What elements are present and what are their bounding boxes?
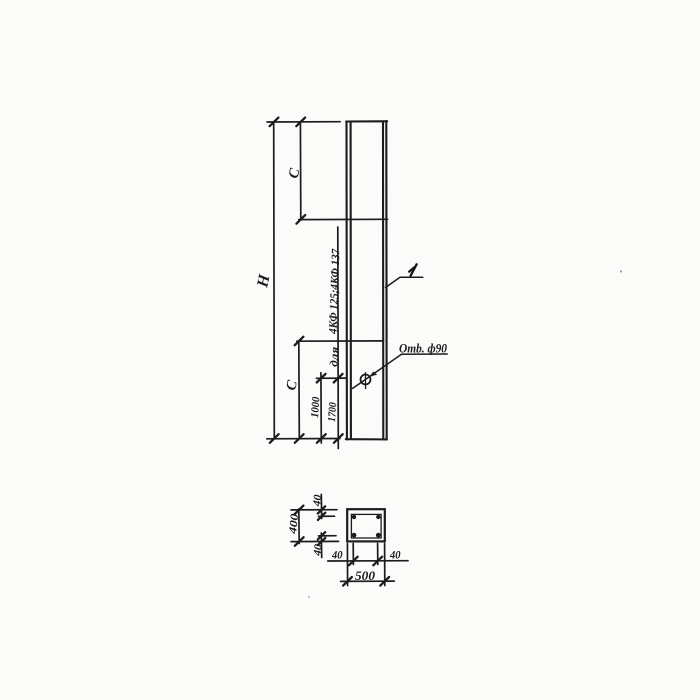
svg-text:1000: 1000 — [309, 396, 322, 418]
svg-text:500: 500 — [355, 568, 376, 583]
svg-text:40: 40 — [331, 550, 343, 562]
svg-text:Omb. ф90: Omb. ф90 — [399, 342, 448, 356]
svg-text:40: 40 — [311, 494, 324, 508]
svg-text:40: 40 — [389, 550, 401, 562]
svg-text:4КФ 125;4КФ 137: 4КФ 125;4КФ 137 — [327, 248, 342, 336]
svg-text:40: 40 — [311, 543, 324, 557]
svg-text:для: для — [328, 346, 341, 367]
svg-text:400: 400 — [287, 513, 301, 536]
svg-text:H: H — [254, 273, 274, 290]
svg-text:1700: 1700 — [326, 401, 339, 422]
